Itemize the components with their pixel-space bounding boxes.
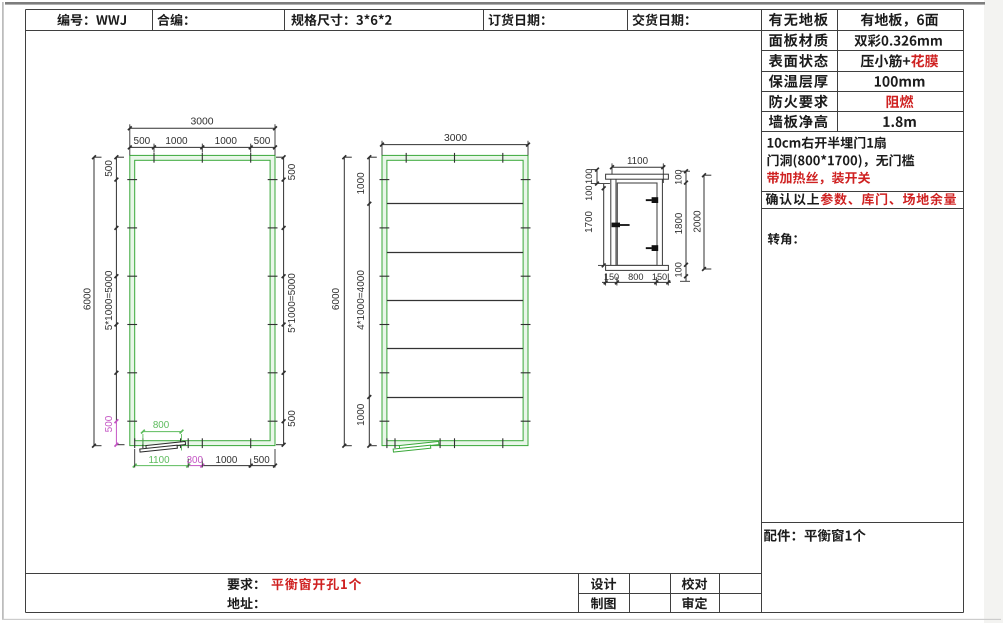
svg-text:1100: 1100 [627, 156, 649, 167]
svg-text:500: 500 [254, 136, 271, 147]
svg-text:3000: 3000 [190, 117, 213, 128]
svg-text:500: 500 [287, 163, 298, 180]
svg-text:800: 800 [628, 272, 643, 282]
svg-text:500: 500 [104, 160, 115, 177]
svg-text:500: 500 [134, 136, 151, 147]
svg-text:1000: 1000 [165, 136, 188, 147]
svg-text:1100: 1100 [148, 455, 170, 466]
svg-text:500: 500 [253, 455, 270, 466]
svg-text:300: 300 [187, 455, 204, 466]
svg-text:6000: 6000 [82, 287, 93, 310]
svg-text:150: 150 [652, 272, 667, 282]
svg-text:500: 500 [287, 410, 298, 427]
svg-text:5*1000=5000: 5*1000=5000 [287, 273, 298, 333]
svg-text:100: 100 [584, 186, 594, 201]
svg-text:1700: 1700 [584, 211, 595, 233]
svg-text:150: 150 [604, 272, 619, 282]
svg-text:1000: 1000 [356, 403, 367, 426]
svg-text:500: 500 [104, 415, 115, 432]
svg-text:1000: 1000 [356, 172, 367, 195]
svg-text:1800: 1800 [674, 212, 685, 234]
svg-text:100: 100 [673, 262, 683, 277]
svg-text:5*1000=5000: 5*1000=5000 [104, 270, 115, 330]
svg-text:1000: 1000 [216, 455, 238, 466]
svg-text:2000: 2000 [693, 210, 704, 233]
svg-text:4*1000=4000: 4*1000=4000 [356, 270, 367, 330]
svg-text:800: 800 [153, 420, 170, 431]
svg-text:1000: 1000 [215, 136, 238, 147]
svg-text:100: 100 [673, 170, 683, 185]
svg-text:100: 100 [584, 169, 594, 184]
svg-text:6000: 6000 [331, 287, 342, 310]
svg-text:3000: 3000 [444, 133, 467, 144]
